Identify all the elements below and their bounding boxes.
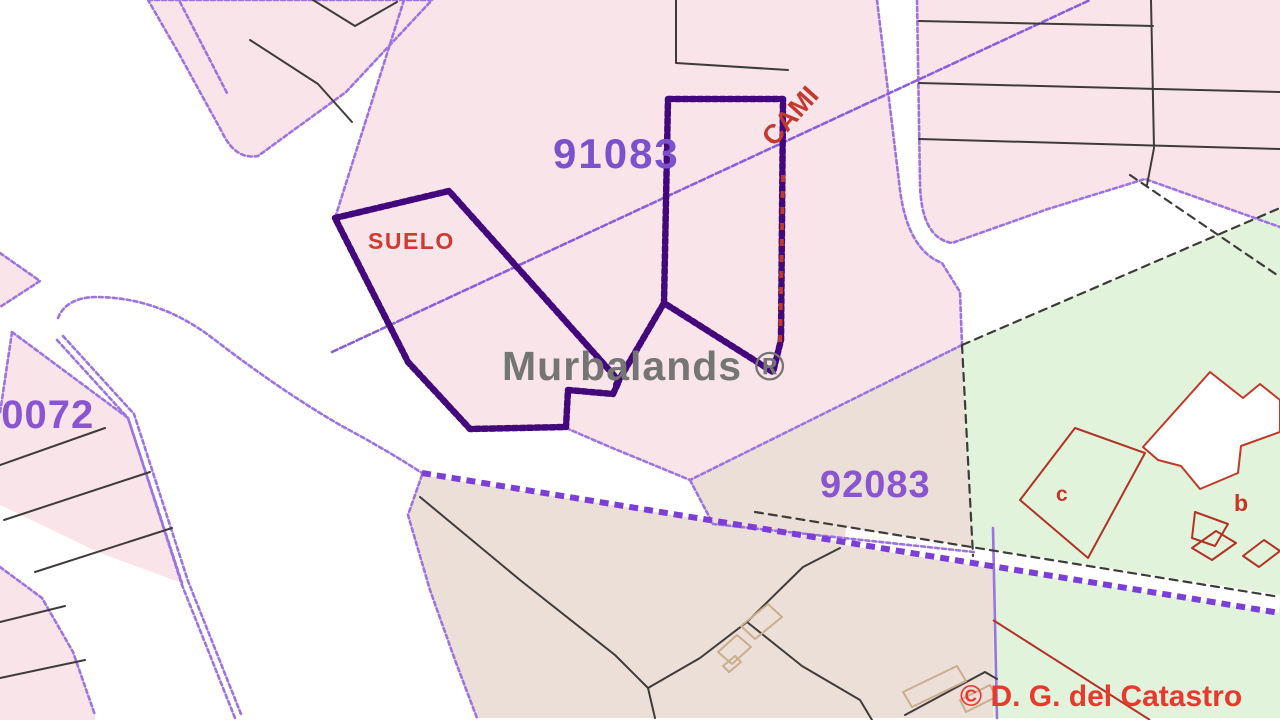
parcel-label-91083: 91083	[553, 130, 680, 177]
map-drawing: 91083 92083 90072 SUELO CAMI Murbalands …	[0, 0, 1280, 720]
building-letter-b: b	[1234, 490, 1248, 516]
watermark-murbalands: Murbalands ®	[502, 343, 786, 389]
attribution-catastro: © D. G. del Catastro	[960, 680, 1242, 713]
parcel-label-92083: 92083	[820, 464, 931, 506]
selected-parcel-label-suelo: SUELO	[368, 228, 455, 254]
parcel-label-90072: 90072	[0, 393, 94, 437]
building-letter-c: c	[1056, 483, 1068, 506]
cadastral-map: 91083 92083 90072 SUELO CAMI Murbalands …	[0, 0, 1280, 720]
